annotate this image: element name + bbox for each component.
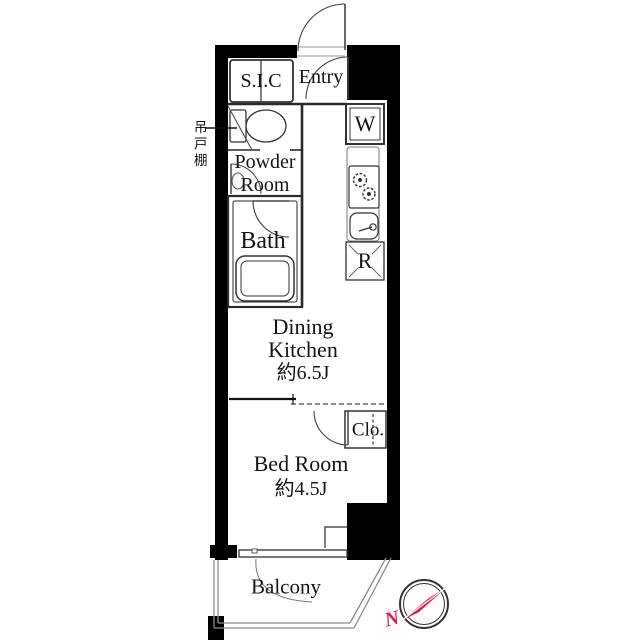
wall-top-left xyxy=(215,45,297,58)
room-label-sic: S.I.C xyxy=(240,71,281,91)
wall-left xyxy=(215,45,228,560)
balcony-window-icon xyxy=(239,549,347,557)
compass-icon xyxy=(400,580,448,628)
room-size-dk: 約6.5J xyxy=(277,363,330,383)
wall-top-right-block xyxy=(347,45,400,100)
annotation-hanging-cupboard: 吊戸棚 xyxy=(192,120,206,170)
room-label-dk-1: Dining xyxy=(272,316,333,338)
room-label-closet: Clo. xyxy=(352,421,384,440)
room-label-dk-2: Kitchen xyxy=(268,339,338,361)
room-label-powder-1: Powder xyxy=(234,152,295,172)
room-label-powder-2: Room xyxy=(241,175,290,195)
wall-step-block xyxy=(347,503,400,560)
room-label-balcony: Balcony xyxy=(251,577,321,598)
room-label-bedroom: Bed Room xyxy=(254,453,349,475)
room-label-bath: Bath xyxy=(240,229,285,253)
bathtub-icon xyxy=(236,256,294,301)
room-label-entry: Entry xyxy=(299,67,343,87)
front-door-icon xyxy=(297,4,345,56)
sliding-door-icon xyxy=(229,394,386,405)
bedroom-step-line xyxy=(325,527,347,548)
floor-plan: S.I.C Entry Powder Room Bath W R Dining … xyxy=(0,0,640,640)
wall-right xyxy=(387,100,400,510)
appliance-label-washer: W xyxy=(355,113,376,135)
wall-bottom-left xyxy=(210,545,237,558)
sink-icon xyxy=(350,213,378,239)
appliance-label-fridge: R xyxy=(358,250,373,272)
room-size-bedroom: 約4.5J xyxy=(275,479,328,499)
stove-icon xyxy=(349,166,379,208)
closet-door-icon xyxy=(314,411,348,445)
